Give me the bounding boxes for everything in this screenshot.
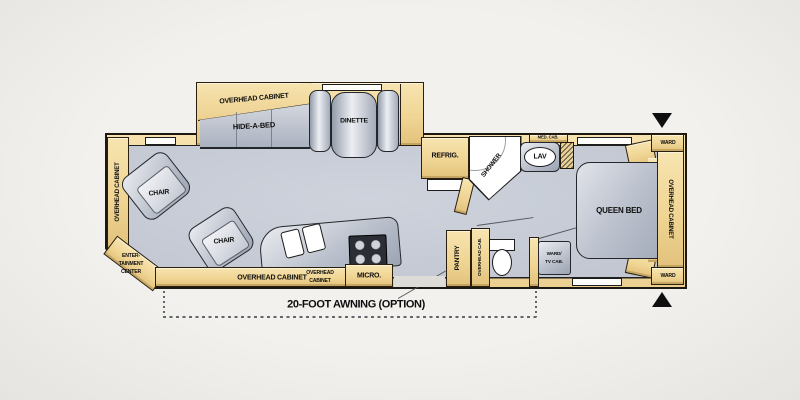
ward-tv-cab-label-line1: WARD/ [547,252,562,257]
bedroom-bottom-window [572,278,622,286]
linen-ribs [560,142,574,169]
refrig-label: REFRIG. [432,153,459,160]
hide-a-bed-front-edge [200,147,310,149]
dinette-window [322,84,382,91]
lav-label: LAV [534,154,547,161]
floorplan-diagram: OVERHEAD CABINET HIDE-A-BED DINETTE OVER… [0,0,800,400]
med-cab-label: MED. CAB. [538,136,559,140]
awning-tick-left [163,291,165,317]
ward-bottom-label: WARD [661,273,676,278]
awning-label: 20-FOOT AWNING (OPTION) [287,300,425,311]
micro-label: MICRO. [357,273,381,280]
pantry-label: PANTRY [455,246,462,271]
awning-tick-right [535,291,537,317]
overhead-cabinet-right-label: OVERHEAD CABINET [667,179,673,238]
overhead-cab-bath-label: OVERHEAD CAB. [478,238,483,276]
ward-tv-cabinet [538,241,571,275]
overhead-cabinet-small-label-line2: CABINET [309,278,330,283]
dinette-bench-left [309,90,331,152]
ward-tv-cab-label-line2: TV CAB. [545,260,563,265]
bedroom-top-window [577,137,632,145]
ward-top-label: WARD [661,140,676,145]
awning-dashed-line [163,316,537,318]
entertainment-center-label-line3: CENTER [121,269,141,274]
dinette-bench-right [377,90,399,152]
queen-bed-label: QUEEN BED [596,207,642,215]
hide-a-bed-label: HIDE-A-BED [233,121,276,131]
slide-arrow-down-icon [652,113,672,128]
dinette-label: DINETTE [340,119,368,126]
slide-arrow-up-icon [652,292,672,307]
overhead-cabinet-small-label-line1: OVERHEAD [306,270,334,275]
sink-basin-right [301,223,326,254]
dinette-wall-line [400,84,401,145]
overhead-cabinet-bottom-label: OVERHEAD CABINET [237,275,307,282]
toilet-bowl [492,249,512,276]
front-window [145,137,176,145]
entertainment-center-label-line2: TAINMENT [119,261,144,266]
overhead-cabinet-left-label: OVERHEAD CABINET [115,162,121,221]
entry-door-opening [394,276,445,287]
entertainment-center-label-line1: ENTER- [122,253,140,258]
